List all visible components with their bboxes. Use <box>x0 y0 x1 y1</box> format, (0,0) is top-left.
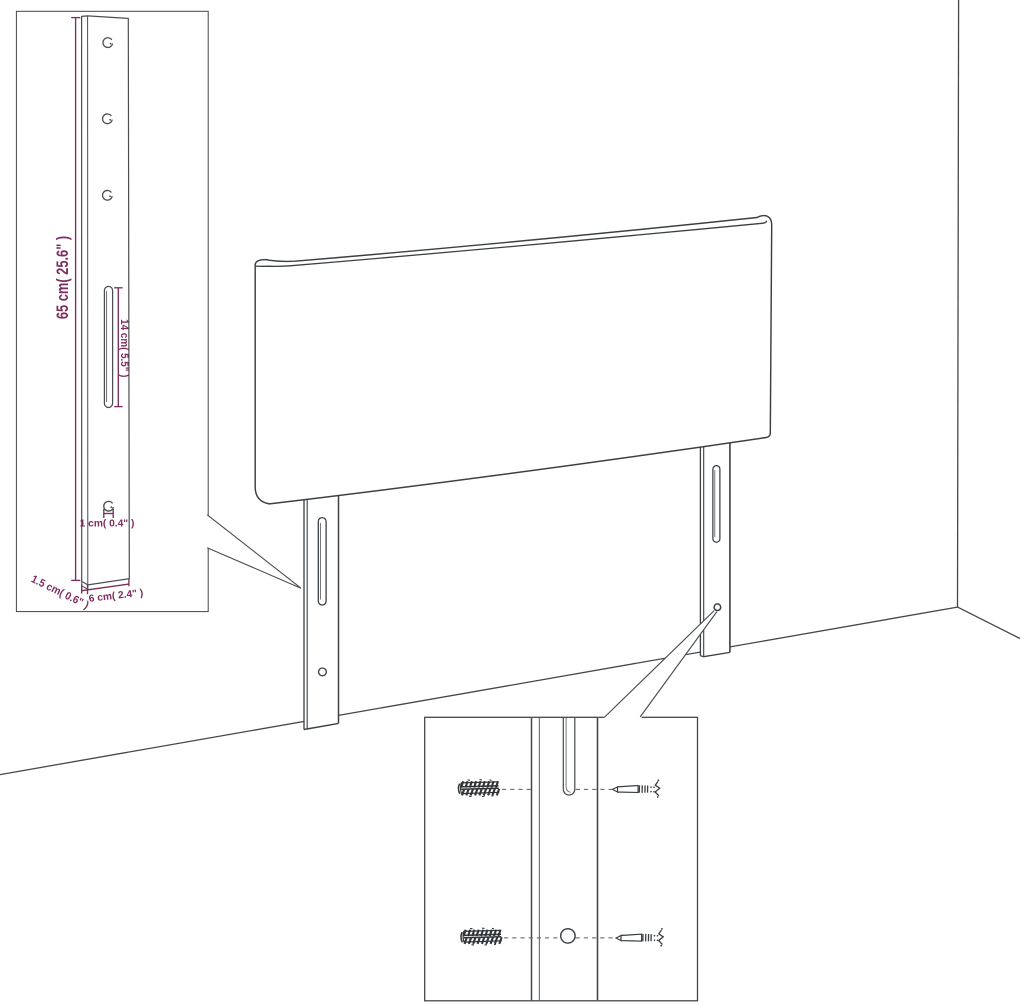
svg-text:14 cm( 5.5" ): 14 cm( 5.5" ) <box>118 319 129 377</box>
svg-text:1 cm( 0.4" ): 1 cm( 0.4" ) <box>80 519 135 530</box>
svg-text:65 cm( 25.6" ): 65 cm( 25.6" ) <box>55 236 73 319</box>
